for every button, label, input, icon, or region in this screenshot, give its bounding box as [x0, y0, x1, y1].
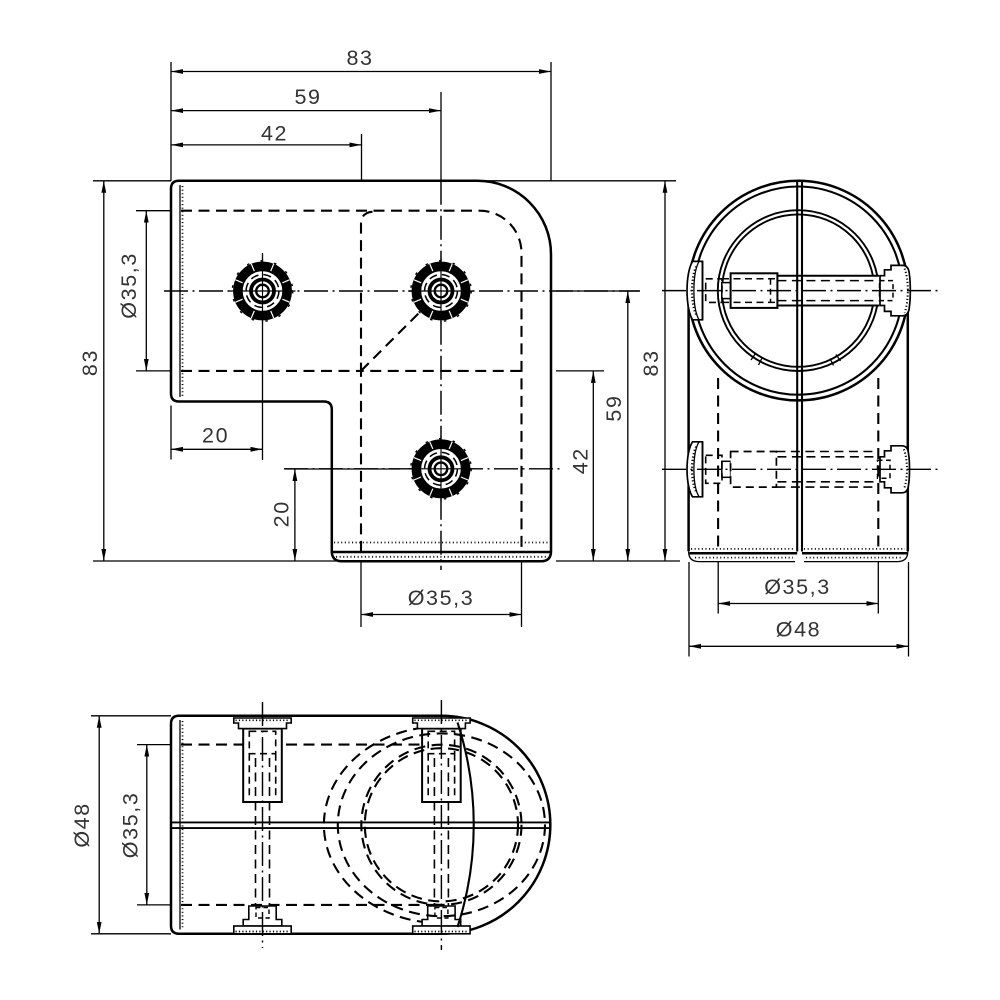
svg-text:42: 42	[261, 122, 288, 146]
svg-text:83: 83	[346, 46, 373, 70]
svg-text:42: 42	[569, 447, 593, 474]
svg-text:Ø35,3: Ø35,3	[118, 792, 142, 859]
svg-text:Ø48: Ø48	[70, 802, 94, 847]
svg-text:59: 59	[602, 394, 626, 421]
svg-text:83: 83	[639, 349, 663, 376]
svg-text:20: 20	[270, 500, 294, 527]
svg-text:59: 59	[294, 85, 321, 109]
svg-text:Ø48: Ø48	[776, 618, 821, 642]
svg-text:Ø35,3: Ø35,3	[408, 586, 475, 610]
svg-text:Ø35,3: Ø35,3	[117, 252, 141, 319]
svg-text:Ø35,3: Ø35,3	[764, 575, 831, 599]
svg-text:83: 83	[78, 349, 102, 376]
svg-text:20: 20	[202, 424, 229, 448]
